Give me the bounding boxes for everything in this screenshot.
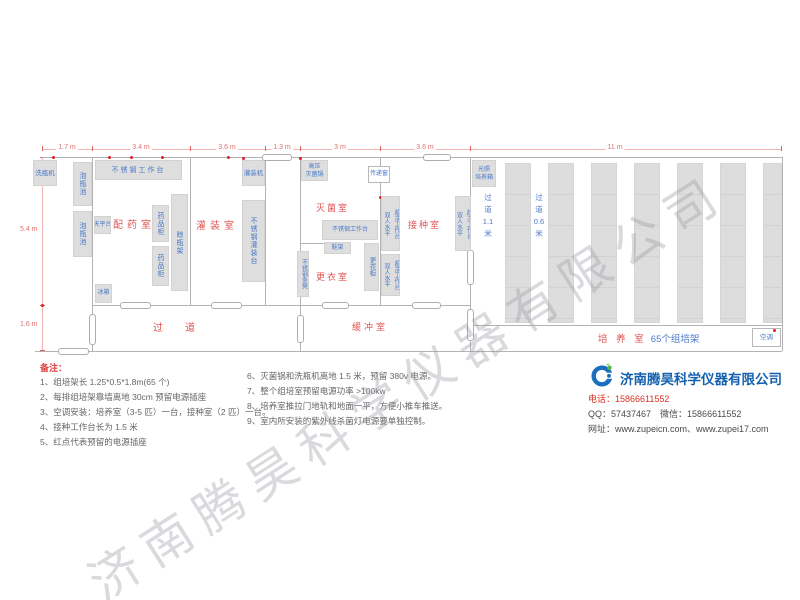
room-label-buffer: 缓冲室	[352, 320, 388, 333]
wall-interior	[265, 157, 266, 305]
company-name: 济南腾昊科学仪器有限公司	[620, 368, 782, 388]
culture-rack	[720, 163, 746, 323]
culture-rack-count: 65个组培架	[651, 334, 700, 345]
outlet-dot	[108, 156, 111, 159]
medicine-cabinet-label: 药品柜	[156, 254, 165, 278]
note-item: 2、每排组培架靠墙离地 30cm 预留电源插座	[40, 390, 270, 405]
note-item: 7、整个组培室预留电源功率 >100kw	[247, 384, 447, 399]
dim-label-3-4m: 3.4 m	[130, 144, 152, 151]
notes-right-column: 6、灭菌锅和洗瓶机离地 1.5 米，预留 380v 电源。 7、整个组培室预留电…	[247, 369, 447, 429]
clean-bench-label: 双人水平	[381, 212, 390, 236]
wall-bottom	[35, 351, 782, 352]
door	[120, 302, 151, 309]
room-label-sterilization: 灭菌室	[316, 201, 349, 214]
culture-rack	[505, 163, 531, 323]
dim-label-3-6m-a: 3.6 m	[216, 144, 238, 151]
dim-label-1-7m: 1.7 m	[56, 144, 78, 151]
clean-bench-block: 双人水平 超净工作台	[381, 254, 400, 296]
autoclave-label: 高压 灭菌锅	[302, 163, 327, 179]
room-label-inoculation: 接种室	[408, 218, 441, 231]
locker-label: 更衣柜	[367, 257, 376, 277]
medicine-cabinet-label: 药品柜	[156, 212, 165, 236]
bottle-rack-label: 晾瓶架	[175, 231, 184, 255]
door	[211, 302, 242, 309]
left-dimension-line	[42, 157, 43, 351]
fridge-label: 冰箱	[97, 289, 109, 298]
outlet-dot	[52, 156, 55, 159]
soaking-pool-label: 泡瓶池	[78, 222, 87, 246]
door	[262, 154, 292, 161]
room-label-medicine-prep: 配药室	[113, 216, 155, 231]
dim-label-5-4m: 5.4 m	[20, 226, 38, 233]
air-conditioner-label: 空调	[760, 333, 773, 342]
wall-culture-room	[470, 325, 782, 326]
outlet-dot	[242, 157, 245, 160]
soaking-pool-block: 泡瓶池	[73, 162, 92, 206]
culture-room-text: 培 养 室	[598, 334, 647, 345]
dim-tick	[781, 146, 782, 151]
ss-workbench-block: 不锈钢工作台	[95, 160, 182, 180]
outlet-dot	[161, 156, 164, 159]
company-logo-icon	[588, 362, 616, 390]
dim-tick	[300, 146, 301, 151]
door-sliding	[467, 309, 474, 341]
balance-table-block: 天平台	[94, 216, 111, 234]
note-item: 6、灭菌锅和洗瓶机离地 1.5 米，预留 380v 电源。	[247, 369, 447, 384]
door-sliding	[467, 250, 474, 285]
door	[423, 154, 451, 161]
bottle-rack-block: 晾瓶架	[171, 194, 188, 291]
note-item: 3、空调安装：培养室（3-5 匹）一台，接种室（2 匹）一台。	[40, 405, 270, 420]
dim-tick	[470, 146, 471, 151]
note-item: 8、培养室推拉门地轨和地面一平，方便小推车推送。	[247, 399, 447, 414]
soaking-pool-label: 泡瓶池	[78, 172, 87, 196]
room-label-culture: 培 养 室65个组培架	[598, 331, 699, 345]
clean-bench-label: 超净工作台	[464, 209, 472, 239]
dim-label-11m: 11 m	[605, 144, 624, 151]
shoe-rack-block: 鞋架	[324, 242, 351, 254]
soaking-pool-block: 泡瓶池	[73, 211, 92, 257]
wall-top	[42, 157, 782, 158]
dim-tick	[190, 146, 191, 151]
wall-interior	[300, 243, 325, 244]
medicine-cabinet-block: 药品柜	[152, 246, 169, 286]
wall-right	[782, 157, 783, 351]
culture-rack	[677, 163, 703, 323]
dim-tick	[265, 146, 266, 151]
dim-label-3-6m-b: 3.6 m	[414, 144, 436, 151]
culture-rack	[634, 163, 660, 323]
note-item: 5、红点代表预留的电源插座	[40, 435, 270, 450]
note-item: 1、组培架长 1.25*0.5*1.8m(65 个)	[40, 375, 270, 390]
dim-tick	[380, 146, 381, 151]
pass-window-block: 传递窗	[368, 166, 390, 183]
locker-block: 更衣柜	[364, 243, 379, 291]
notes-title: 备注：	[40, 361, 270, 375]
bottle-washer-label: 洗瓶机	[35, 169, 55, 178]
ss-filling-table-block: 不锈钢灌装台	[242, 200, 265, 282]
filling-machine-block: 灌装机	[242, 160, 265, 186]
company-qq-wechat: QQ：57437467 微信：15866611552	[588, 407, 741, 420]
ss-filling-table-label: 不锈钢灌装台	[249, 217, 258, 265]
dim-label-3m: 3 m	[332, 144, 348, 151]
room-label-corridor: 过道	[153, 319, 217, 334]
clean-bench-block: 双人水平 超净工作台	[381, 196, 400, 251]
company-website: 网址：www.zupeicn.com、www.zupei17.com	[588, 422, 769, 435]
dim-tick	[42, 146, 43, 151]
outlet-dot	[227, 156, 230, 159]
filling-machine-label: 灌装机	[244, 169, 264, 178]
shoe-rack-label: 鞋架	[331, 244, 343, 253]
autoclave-block: 高压 灭菌锅	[301, 160, 328, 181]
light-incubator-block: 光照 培养箱	[472, 160, 496, 187]
company-phone: 电话：15866611552	[588, 392, 669, 405]
culture-rack	[763, 163, 782, 323]
fridge-block: 冰箱	[95, 284, 112, 303]
culture-rack	[548, 163, 574, 323]
clean-bench-label: 双人水平	[381, 263, 390, 287]
aisle-label-1-1m: 过 道 1.1 米	[480, 192, 496, 240]
ss-bench-label: 不锈钢条凳	[299, 259, 308, 289]
clean-bench-block: 双人水平 超净工作台	[455, 196, 471, 251]
outlet-dot	[130, 156, 133, 159]
dim-label-1-6m: 1.6 m	[20, 321, 38, 328]
bottle-washer-block: 洗瓶机	[33, 160, 57, 186]
clean-bench-label: 超净工作台	[391, 209, 400, 239]
room-label-filling: 灌装室	[196, 217, 238, 232]
outlet-dot	[299, 157, 302, 160]
dim-tick	[92, 146, 93, 151]
ss-workbench-label: 不锈钢工作台	[332, 226, 368, 235]
door	[297, 315, 304, 343]
aisle-label-0-6m: 过 道 0.6 米	[531, 192, 547, 240]
outlet-dot	[773, 329, 776, 332]
ss-workbench-label: 不锈钢工作台	[112, 166, 166, 175]
door	[412, 302, 441, 309]
clean-bench-label: 双人水平	[455, 212, 463, 236]
ss-bench-block: 不锈钢条凳	[297, 251, 309, 297]
pass-window-label: 传递窗	[370, 170, 388, 179]
dim-label-1-3m: 1.3 m	[271, 144, 293, 151]
door	[58, 348, 89, 355]
floor-plan-page: 济南腾昊科学仪器有限公司 1.7 m 3.4 m 3.6 m 1.3 m 3 m…	[0, 0, 800, 600]
note-item: 9、室内所安装的紫外线杀菌灯电源要单独控制。	[247, 414, 447, 429]
wall-interior	[190, 157, 191, 305]
light-incubator-label: 光照 培养箱	[473, 166, 495, 182]
door	[89, 314, 96, 345]
balance-table-label: 天平台	[94, 221, 111, 230]
culture-rack	[591, 163, 617, 323]
outlet-dot	[41, 304, 44, 307]
door	[322, 302, 349, 309]
air-conditioner-block: 空调	[752, 328, 781, 347]
note-item: 4、接种工作台长为 1.5 米	[40, 420, 270, 435]
ss-workbench-block: 不锈钢工作台	[322, 220, 378, 240]
top-dimension-line	[42, 149, 782, 150]
room-label-changing: 更衣室	[316, 270, 349, 283]
clean-bench-label: 超净工作台	[391, 260, 400, 290]
notes-left-column: 备注： 1、组培架长 1.25*0.5*1.8m(65 个) 2、每排组培架靠墙…	[40, 361, 270, 450]
